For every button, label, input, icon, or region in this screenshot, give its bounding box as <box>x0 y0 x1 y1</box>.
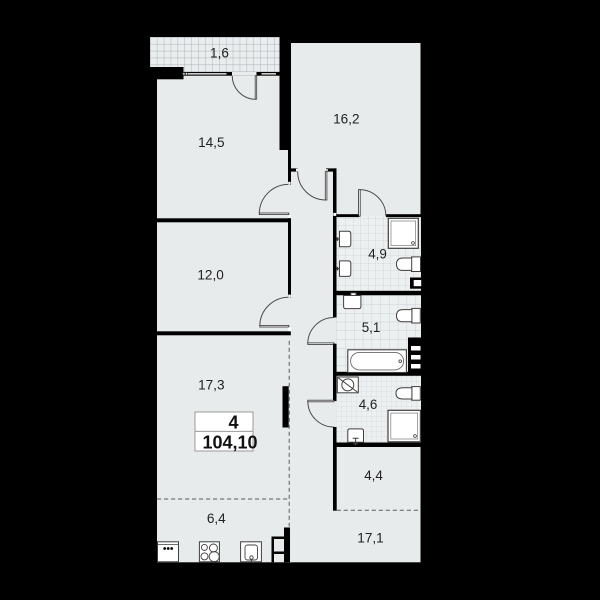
svg-text:12,0: 12,0 <box>197 268 224 283</box>
svg-text:4,4: 4,4 <box>364 468 383 483</box>
svg-text:17,1: 17,1 <box>357 531 383 546</box>
svg-text:6,4: 6,4 <box>207 511 226 526</box>
svg-text:4,9: 4,9 <box>368 246 387 261</box>
svg-text:4: 4 <box>228 413 238 433</box>
svg-text:16,2: 16,2 <box>333 112 359 127</box>
svg-text:17,3: 17,3 <box>198 377 224 392</box>
svg-text:1,6: 1,6 <box>210 45 229 60</box>
svg-text:5,1: 5,1 <box>362 320 381 335</box>
svg-text:4,6: 4,6 <box>359 397 378 412</box>
svg-text:14,5: 14,5 <box>198 135 224 150</box>
svg-text:104,10: 104,10 <box>202 432 257 452</box>
